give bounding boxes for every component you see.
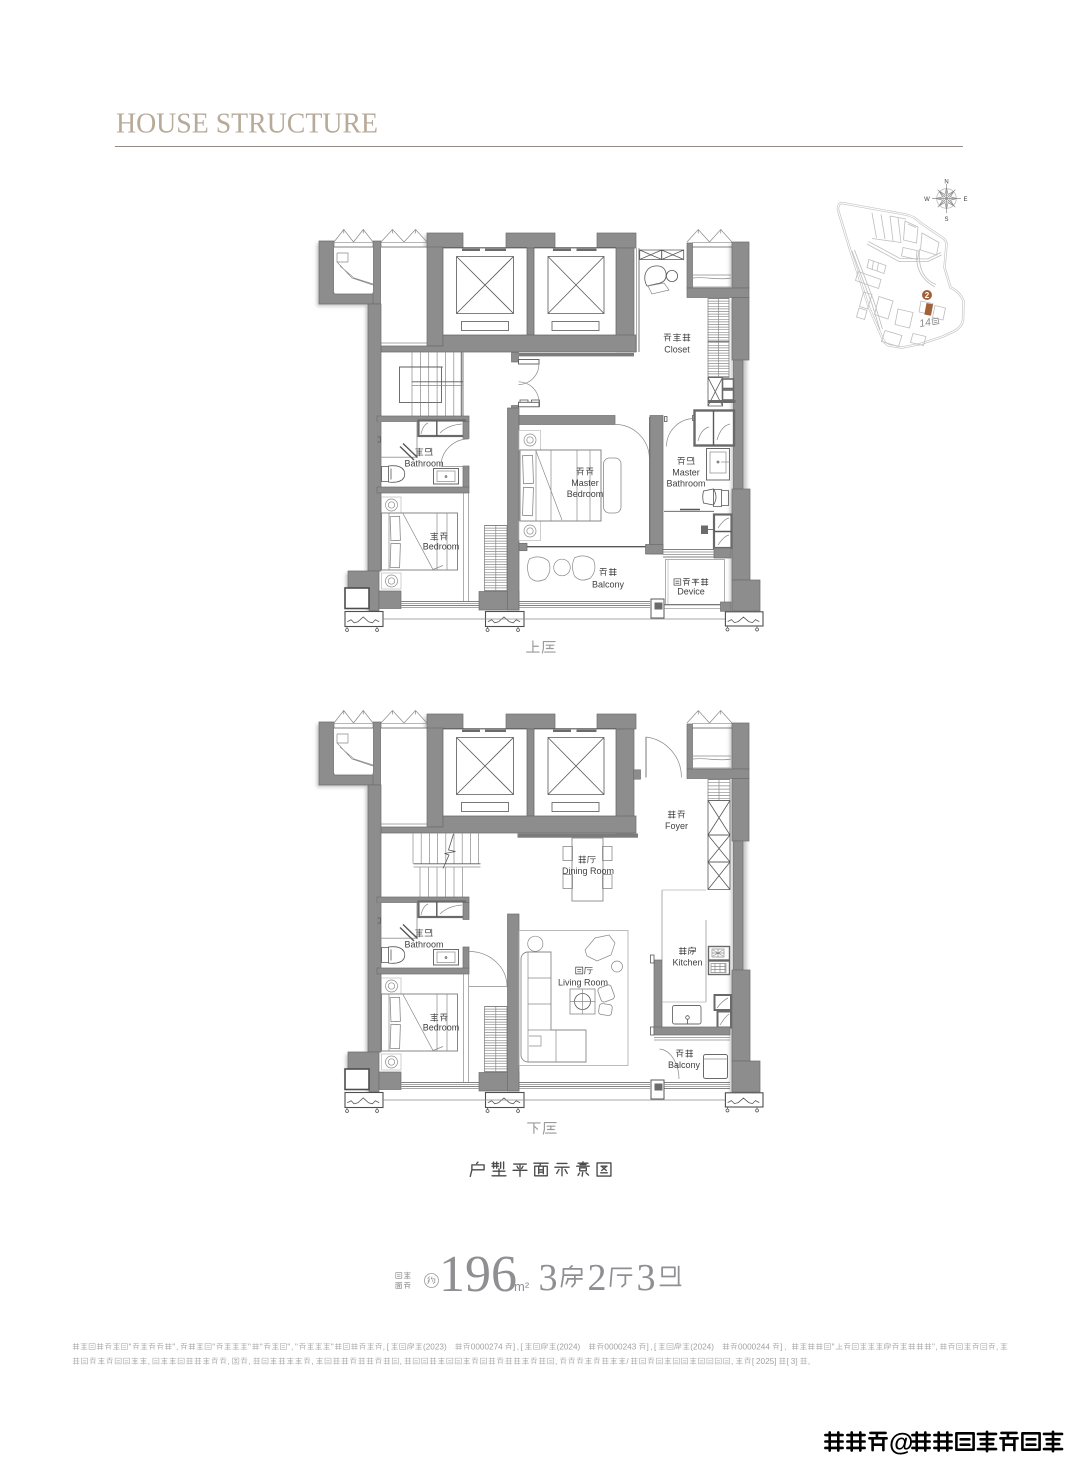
svg-text:,: , [996, 1343, 998, 1352]
svg-text:E: E [963, 197, 967, 203]
svg-text:0000243: 0000243 [604, 1343, 636, 1352]
svg-text:Device: Device [677, 587, 705, 597]
svg-text:": " [295, 1343, 298, 1352]
svg-text:,: , [311, 1357, 313, 1366]
svg-text:(2023): (2023) [423, 1343, 447, 1352]
svg-text:2: 2 [588, 1257, 607, 1299]
svg-text:@: @ [889, 1429, 913, 1457]
svg-text:]: ] [774, 1357, 776, 1366]
svg-text:,: , [517, 1343, 519, 1352]
svg-text:3: 3 [637, 1257, 656, 1299]
svg-text:14: 14 [918, 316, 932, 330]
svg-text:": " [129, 1343, 132, 1352]
svg-text:Master: Master [571, 478, 599, 488]
svg-text:Closet: Closet [664, 345, 690, 355]
svg-text:,: , [731, 1357, 733, 1366]
svg-text:Bathroom: Bathroom [404, 459, 443, 469]
svg-text:]: ] [647, 1343, 649, 1352]
svg-text:W: W [924, 197, 930, 203]
svg-text:HOUSE STRUCTURE: HOUSE STRUCTURE [116, 109, 378, 140]
svg-text:196: 196 [439, 1246, 517, 1303]
svg-text:0000274: 0000274 [471, 1343, 503, 1352]
svg-text:,: , [651, 1343, 653, 1352]
svg-text:Bathroom: Bathroom [666, 479, 705, 489]
svg-text:]: ] [780, 1343, 782, 1352]
svg-text:Bedroom: Bedroom [423, 542, 460, 552]
svg-text:": " [172, 1343, 175, 1352]
svg-text:S: S [944, 217, 948, 223]
svg-text:,: , [936, 1343, 938, 1352]
svg-text:": " [248, 1343, 251, 1352]
svg-text:,: , [808, 1357, 810, 1366]
svg-text:,: , [291, 1343, 293, 1352]
svg-text:(2024): (2024) [557, 1343, 581, 1352]
svg-text:,: , [400, 1357, 402, 1366]
svg-text:,: , [148, 1357, 150, 1366]
svg-text:": " [832, 1343, 835, 1352]
svg-text:Balcony: Balcony [592, 580, 625, 590]
svg-text:,: , [228, 1357, 230, 1366]
svg-text:Bathroom: Bathroom [404, 940, 443, 950]
svg-text:2: 2 [925, 291, 930, 300]
svg-text:(2024): (2024) [690, 1343, 714, 1352]
svg-text:,: , [176, 1343, 178, 1352]
svg-text:,: , [383, 1343, 385, 1352]
svg-text:Foyer: Foyer [665, 821, 688, 831]
svg-text:Dining Room: Dining Room [562, 866, 614, 876]
svg-text:0000244: 0000244 [738, 1343, 770, 1352]
svg-text:m²: m² [514, 1279, 530, 1294]
svg-text:": " [212, 1343, 215, 1352]
svg-text:": " [260, 1343, 263, 1352]
svg-text:]: ] [795, 1357, 797, 1366]
svg-text:": " [331, 1343, 334, 1352]
svg-text:Balcony: Balcony [668, 1060, 701, 1070]
svg-text:,: , [248, 1357, 250, 1366]
svg-text:2025: 2025 [756, 1357, 775, 1366]
svg-text:Kitchen: Kitchen [672, 958, 702, 968]
svg-text:,: , [784, 1343, 786, 1352]
svg-text:N: N [944, 180, 948, 186]
svg-text:]: ] [513, 1343, 515, 1352]
svg-text:": " [287, 1343, 290, 1352]
svg-text:Living Room: Living Room [558, 978, 608, 988]
svg-text:,: , [555, 1357, 557, 1366]
svg-text:Bedroom: Bedroom [423, 1023, 460, 1033]
svg-text:3: 3 [539, 1257, 558, 1299]
svg-text:Bedroom: Bedroom [567, 489, 604, 499]
svg-text:Master: Master [672, 468, 700, 478]
